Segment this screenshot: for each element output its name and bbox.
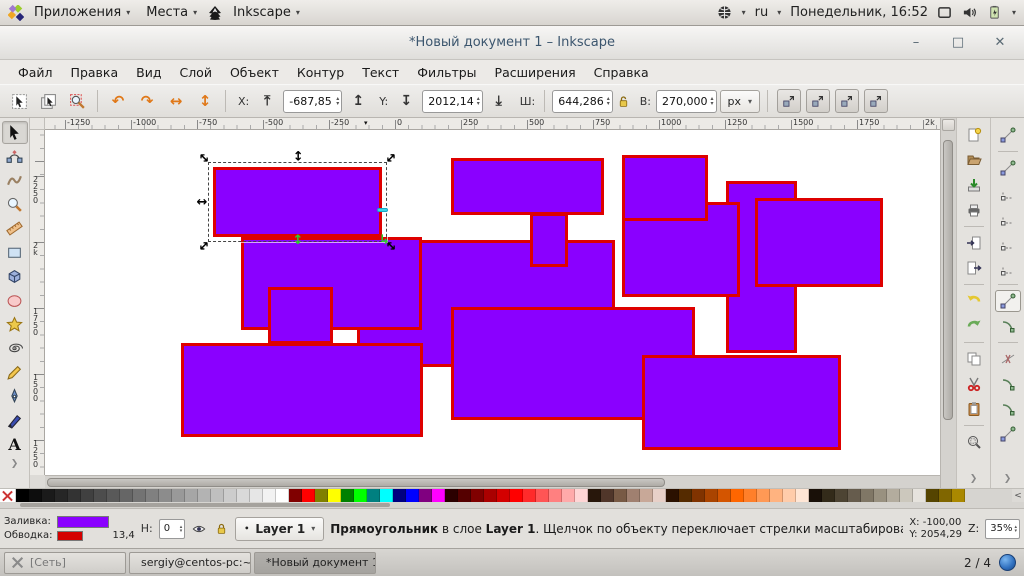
distro-logo-icon xyxy=(8,5,24,21)
width-label: Ш: xyxy=(520,95,535,108)
color-swatch-72[interactable] xyxy=(939,489,952,502)
color-swatch-10[interactable] xyxy=(133,489,146,502)
workspace-pager[interactable]: 2 / 4 xyxy=(964,556,991,570)
vertical-scrollbar[interactable] xyxy=(940,118,956,488)
y-field[interactable]: 2012,14 xyxy=(422,90,483,113)
taskbar-item-1[interactable]: [Сеть] xyxy=(4,552,126,574)
color-swatch-17[interactable] xyxy=(224,489,237,502)
color-swatch-56[interactable] xyxy=(731,489,744,502)
spinner-arrows-icon[interactable] xyxy=(607,96,610,106)
selection-toolbar: X: -687,85 Y: 2012,14 Ш: 644,286 В: 270,… xyxy=(0,84,1024,118)
color-swatch-12[interactable] xyxy=(159,489,172,502)
color-swatch-1[interactable] xyxy=(16,489,29,502)
color-swatch-44[interactable] xyxy=(575,489,588,502)
menu-4[interactable]: Слой xyxy=(171,62,220,83)
snap-bbox-corner-button[interactable] xyxy=(995,207,1021,229)
menu-3[interactable]: Вид xyxy=(128,62,169,83)
menu-2[interactable]: Правка xyxy=(63,62,127,83)
tool-text[interactable]: A xyxy=(2,433,28,456)
snap-bbox-edge-button[interactable] xyxy=(995,182,1021,204)
color-swatch-52[interactable] xyxy=(679,489,692,502)
snap-cusp-node-button[interactable] xyxy=(995,373,1021,395)
color-swatch-11[interactable] xyxy=(146,489,159,502)
overflow-chevron[interactable]: ❯ xyxy=(970,474,978,484)
color-swatch-20[interactable] xyxy=(263,489,276,502)
zoom-field[interactable]: 35% xyxy=(985,519,1020,539)
display-icon[interactable] xyxy=(937,5,953,21)
keyboard-layout-indicator[interactable]: ru xyxy=(755,5,769,20)
ruler-tick-label: -1000 xyxy=(133,118,156,127)
zoom-drawing-button[interactable] xyxy=(961,431,987,453)
raise-to-top-button[interactable]: ⤒ xyxy=(254,88,280,114)
tool-select[interactable] xyxy=(2,121,28,144)
tool-star[interactable] xyxy=(2,313,28,336)
x-label: X: xyxy=(238,95,249,108)
ruler-tick-label: -1250 xyxy=(67,118,90,127)
ruler-toggle-button[interactable] xyxy=(942,119,955,131)
color-swatch-47[interactable] xyxy=(614,489,627,502)
vertical-scrollbar-thumb[interactable] xyxy=(943,140,953,420)
status-message: Прямоугольник в слое Layer 1. Щелчок по … xyxy=(330,522,903,536)
tool-box3d[interactable] xyxy=(2,265,28,288)
color-swatch-36[interactable] xyxy=(471,489,484,502)
layer-visibility-icon[interactable] xyxy=(191,521,207,537)
lower-to-bottom-button[interactable]: ⤓ xyxy=(486,88,512,114)
redo-button[interactable] xyxy=(961,315,987,337)
ruler-tick-label: 1250 xyxy=(727,118,747,127)
ruler-tick-label: -750 xyxy=(199,118,217,127)
separator xyxy=(767,90,768,112)
x-field[interactable]: -687,85 xyxy=(283,90,342,113)
ruler-tick-label: 1 5 0 0 xyxy=(30,374,41,402)
color-swatch-18[interactable] xyxy=(237,489,250,502)
units-dropdown[interactable]: px▾ xyxy=(720,90,761,113)
fill-swatch[interactable] xyxy=(57,516,109,528)
close-button[interactable]: ✕ xyxy=(992,35,1008,50)
raise-button[interactable]: ↥ xyxy=(345,88,371,114)
color-swatch-38[interactable] xyxy=(497,489,510,502)
stroke-label: Обводка: xyxy=(4,530,53,541)
scroll-corner xyxy=(30,475,45,488)
color-swatch-37[interactable] xyxy=(484,489,497,502)
scale-handle[interactable]: ↔ xyxy=(290,148,306,164)
color-swatch-59[interactable] xyxy=(770,489,783,502)
snap-target-indicator xyxy=(377,208,388,212)
color-swatch-33[interactable] xyxy=(432,489,445,502)
horizontal-scrollbar-thumb[interactable] xyxy=(47,478,665,487)
ruler-tick-label: 250 xyxy=(463,118,478,127)
width-field[interactable]: 644,286 xyxy=(552,90,613,113)
chevron-down-icon: ▾ xyxy=(742,8,746,17)
rotate-ccw-button[interactable]: ↶ xyxy=(105,88,131,114)
save-button[interactable] xyxy=(961,174,987,196)
menu-1[interactable]: Файл xyxy=(10,62,61,83)
snap-path-button[interactable] xyxy=(995,315,1021,337)
select-all-layers-button[interactable] xyxy=(35,88,61,114)
spinner-arrows-icon[interactable] xyxy=(711,96,714,106)
snap-midpoint-button[interactable] xyxy=(995,423,1021,445)
rectangle-object-8[interactable] xyxy=(755,198,883,287)
chevron-down-icon: ▾ xyxy=(193,8,197,17)
move-gradients-toggle[interactable] xyxy=(806,89,830,113)
desktop: Приложения▾ Места▾ Inkscape▾ ▾ ru ▾ Поне… xyxy=(0,0,1024,576)
palette-scrollbar-thumb[interactable] xyxy=(20,503,390,507)
flip-horizontal-button[interactable]: ↔ xyxy=(163,88,189,114)
swatch-none[interactable] xyxy=(0,489,16,502)
snap-bbox-button[interactable] xyxy=(995,157,1021,179)
snap-intersection-button[interactable] xyxy=(995,348,1021,370)
separator xyxy=(998,284,1018,285)
tool-node[interactable] xyxy=(2,145,28,168)
color-swatch-65[interactable] xyxy=(848,489,861,502)
color-swatch-19[interactable] xyxy=(250,489,263,502)
color-swatch-31[interactable] xyxy=(406,489,419,502)
overflow-chevron[interactable]: ❯ xyxy=(1004,474,1012,484)
tool-rectangle[interactable] xyxy=(2,241,28,264)
height-field[interactable]: 270,000 xyxy=(656,90,717,113)
color-swatch-71[interactable] xyxy=(926,489,939,502)
statusbar: Заливка: Обводка: 13,4 H: 0 • Layer 1 ▾ … xyxy=(0,508,1024,548)
snap-bbox-center-button[interactable] xyxy=(995,257,1021,279)
menu-7[interactable]: Текст xyxy=(354,62,407,83)
new-document-button[interactable] xyxy=(961,124,987,146)
layer-lock-icon[interactable] xyxy=(213,521,229,537)
app-window-menu[interactable]: Inkscape▾ xyxy=(227,3,306,22)
color-swatch-28[interactable] xyxy=(367,489,380,502)
color-swatch-14[interactable] xyxy=(185,489,198,502)
snap-indicator-icon: ↕ xyxy=(293,233,304,248)
tool-tweak[interactable] xyxy=(2,169,28,192)
ruler-tick-label: -250 xyxy=(331,118,349,127)
ruler-cursor-marker: ▾ xyxy=(364,119,368,127)
battery-icon[interactable] xyxy=(987,5,1003,21)
color-swatch-53[interactable] xyxy=(692,489,705,502)
separator xyxy=(97,90,98,112)
color-swatch-41[interactable] xyxy=(536,489,549,502)
menubar: ФайлПравкаВидСлойОбъектКонтурТекстФильтр… xyxy=(0,60,1024,84)
zoom-selection-button[interactable] xyxy=(64,88,90,114)
color-swatch-45[interactable] xyxy=(588,489,601,502)
color-swatch-8[interactable] xyxy=(107,489,120,502)
color-swatch-69[interactable] xyxy=(900,489,913,502)
color-swatch-60[interactable] xyxy=(783,489,796,502)
separator xyxy=(998,342,1018,343)
rotate-cw-button[interactable]: ↷ xyxy=(134,88,160,114)
chevron-down-icon: ▾ xyxy=(748,97,752,106)
move-patterns-toggle[interactable] xyxy=(777,89,801,113)
svg-text:A: A xyxy=(7,436,21,453)
color-swatch-29[interactable] xyxy=(380,489,393,502)
color-swatch-63[interactable] xyxy=(822,489,835,502)
ruler-corner xyxy=(30,118,45,130)
chevron-down-icon: ▾ xyxy=(777,8,781,17)
rectangle-object-9[interactable] xyxy=(181,343,423,437)
opacity-label: H: xyxy=(141,522,153,535)
menu-6[interactable]: Контур xyxy=(289,62,352,83)
tool-ellipse[interactable] xyxy=(2,289,28,312)
color-swatch-67[interactable] xyxy=(874,489,887,502)
maximize-button[interactable]: □ xyxy=(950,35,966,50)
color-swatch-54[interactable] xyxy=(705,489,718,502)
color-swatch-16[interactable] xyxy=(211,489,224,502)
vertical-ruler[interactable]: 2 2 5 02 k1 7 5 01 5 0 01 2 5 0 xyxy=(30,130,45,475)
taskbar-item-2[interactable]: sergiy@centos-pc:~ xyxy=(129,552,251,574)
layer-dropdown[interactable]: • Layer 1 ▾ xyxy=(235,517,324,541)
selection-marquee xyxy=(208,162,387,242)
color-swatch-6[interactable] xyxy=(81,489,94,502)
open-button[interactable] xyxy=(961,149,987,171)
inkscape-logo-icon xyxy=(207,5,223,21)
lock-ratio-icon[interactable] xyxy=(616,93,632,109)
color-swatch-24[interactable] xyxy=(315,489,328,502)
volume-icon[interactable] xyxy=(962,5,978,21)
print-button[interactable] xyxy=(961,199,987,221)
zoom-label: Z: xyxy=(968,522,979,535)
color-swatch-58[interactable] xyxy=(757,489,770,502)
separator xyxy=(998,151,1018,152)
tool-calligraphy[interactable] xyxy=(2,409,28,432)
color-swatch-35[interactable] xyxy=(458,489,471,502)
rectangle-object-7[interactable] xyxy=(622,155,708,221)
horizontal-ruler[interactable]: -1250-1000-750-500-250025050075010001250… xyxy=(45,118,940,130)
ruler-tick-label: 1750 xyxy=(859,118,879,127)
separator xyxy=(964,425,984,426)
toolbox: A❯ xyxy=(0,118,30,488)
color-swatch-42[interactable] xyxy=(549,489,562,502)
menu-5[interactable]: Объект xyxy=(222,62,287,83)
ruler-tick-label: 0 xyxy=(397,118,402,127)
spinner-arrows-icon[interactable] xyxy=(477,96,480,106)
separator xyxy=(964,226,984,227)
color-swatch-7[interactable] xyxy=(94,489,107,502)
ruler-tick-label: 2k xyxy=(925,118,935,127)
color-swatch-25[interactable] xyxy=(328,489,341,502)
color-swatch-48[interactable] xyxy=(627,489,640,502)
stroke-width-value[interactable]: 13,4 xyxy=(113,530,135,541)
select-all-button[interactable] xyxy=(6,88,32,114)
tool-measure[interactable] xyxy=(2,217,28,240)
workspace-indicator-icon[interactable] xyxy=(999,554,1016,571)
menu-10[interactable]: Справка xyxy=(586,62,657,83)
rectangle-object-6[interactable] xyxy=(530,213,568,267)
separator xyxy=(964,284,984,285)
ruler-tick-label: 2 2 5 0 xyxy=(30,176,41,204)
color-swatch-34[interactable] xyxy=(445,489,458,502)
color-swatch-64[interactable] xyxy=(835,489,848,502)
snap-toggle-button[interactable] xyxy=(995,124,1021,146)
lower-button[interactable]: ↧ xyxy=(393,88,419,114)
globe-icon[interactable] xyxy=(717,5,733,21)
spinner-arrows-icon[interactable] xyxy=(1014,525,1017,533)
separator xyxy=(964,342,984,343)
tool-spiral[interactable] xyxy=(2,337,28,360)
chevron-down-icon: ▾ xyxy=(311,524,315,533)
horizontal-scrollbar[interactable] xyxy=(45,475,940,488)
desktop-panel: Приложения▾ Места▾ Inkscape▾ ▾ ru ▾ Поне… xyxy=(0,0,1024,26)
move-clips-toggle[interactable] xyxy=(835,89,859,113)
color-swatch-61[interactable] xyxy=(796,489,809,502)
window-titlebar[interactable]: *Новый документ 1 – Inkscape –□✕ xyxy=(0,26,1024,60)
ruler-tick-label: 1 2 5 0 xyxy=(30,440,41,468)
color-swatch-46[interactable] xyxy=(601,489,614,502)
applications-menu[interactable]: Приложения▾ xyxy=(28,3,136,22)
color-swatch-5[interactable] xyxy=(68,489,81,502)
taskbar: [Сеть]sergiy@centos-pc:~*Новый документ … xyxy=(0,548,1024,576)
color-swatch-22[interactable] xyxy=(289,489,302,502)
ruler-tick-label: -500 xyxy=(265,118,283,127)
chevron-down-icon: ▾ xyxy=(296,8,300,17)
opacity-field[interactable]: 0 xyxy=(159,519,186,539)
color-swatch-15[interactable] xyxy=(198,489,211,502)
color-swatch-62[interactable] xyxy=(809,489,822,502)
layer-dot-icon: • xyxy=(244,524,249,533)
snap-bar: ❯ xyxy=(990,118,1024,488)
ruler-tick-label: 1 7 5 0 xyxy=(30,308,41,336)
import-button[interactable] xyxy=(961,232,987,254)
toolbox-overflow-chevron[interactable]: ❯ xyxy=(11,459,19,469)
separator xyxy=(544,90,545,112)
undo-button[interactable] xyxy=(961,290,987,312)
snap-nodes-button[interactable] xyxy=(995,290,1021,312)
color-swatch-66[interactable] xyxy=(861,489,874,502)
cursor-coordinates: X: -100,00 Y: 2054,29 xyxy=(909,517,962,541)
ruler-tick-label: 1500 xyxy=(793,118,813,127)
color-swatch-13[interactable] xyxy=(172,489,185,502)
color-swatch-32[interactable] xyxy=(419,489,432,502)
color-swatch-49[interactable] xyxy=(640,489,653,502)
tool-pen[interactable] xyxy=(2,385,28,408)
flip-vertical-button[interactable]: ↕ xyxy=(192,88,218,114)
separator xyxy=(225,90,226,112)
color-palette: < xyxy=(0,488,1024,502)
commands-bar: ❯ xyxy=(956,118,990,488)
stroke-swatch[interactable] xyxy=(57,531,83,541)
tool-pencil[interactable] xyxy=(2,361,28,384)
menu-8[interactable]: Фильтры xyxy=(409,62,484,83)
palette-scrollbar[interactable] xyxy=(0,502,1024,508)
minimize-button[interactable]: – xyxy=(908,35,924,50)
height-label: В: xyxy=(640,95,651,108)
color-swatch-26[interactable] xyxy=(341,489,354,502)
taskbar-item-3[interactable]: *Новый документ 1 – Inkscape xyxy=(254,552,376,574)
snap-smooth-node-button[interactable] xyxy=(995,398,1021,420)
rectangle-object-5[interactable] xyxy=(451,158,604,215)
transform-stroke-toggle[interactable] xyxy=(864,89,888,113)
scale-handle[interactable]: ↔ xyxy=(194,194,210,210)
color-swatch-2[interactable] xyxy=(29,489,42,502)
chevron-down-icon: ▾ xyxy=(126,8,130,17)
color-swatch-23[interactable] xyxy=(302,489,315,502)
rectangle-object-10[interactable] xyxy=(268,287,333,344)
color-swatch-27[interactable] xyxy=(354,489,367,502)
color-swatch-57[interactable] xyxy=(744,489,757,502)
tool-zoom[interactable] xyxy=(2,193,28,216)
canvas[interactable]: ↔↔↔↔↔↔↕↳ xyxy=(45,130,940,475)
spinner-arrows-icon[interactable] xyxy=(180,525,183,533)
places-menu[interactable]: Места▾ xyxy=(140,3,203,22)
color-swatch-50[interactable] xyxy=(653,489,666,502)
fill-label: Заливка: xyxy=(4,516,53,527)
color-swatch-70[interactable] xyxy=(913,489,926,502)
color-swatch-3[interactable] xyxy=(42,489,55,502)
color-swatch-43[interactable] xyxy=(562,489,575,502)
color-swatch-40[interactable] xyxy=(523,489,536,502)
color-swatch-39[interactable] xyxy=(510,489,523,502)
ruler-tick-label: 2 k xyxy=(30,242,41,256)
palette-scroll-left-button[interactable]: < xyxy=(1012,489,1024,502)
snap-indicator-icon: ↳ xyxy=(379,233,390,248)
snap-bbox-edge-mid-button[interactable] xyxy=(995,232,1021,254)
cut-button[interactable] xyxy=(961,373,987,395)
color-swatch-73[interactable] xyxy=(952,489,965,502)
export-button[interactable] xyxy=(961,257,987,279)
y-label: Y: xyxy=(379,95,388,108)
color-swatch-51[interactable] xyxy=(666,489,679,502)
color-swatch-9[interactable] xyxy=(120,489,133,502)
window-title: *Новый документ 1 – Inkscape xyxy=(0,35,1024,50)
clock[interactable]: Понедельник, 16:52 xyxy=(790,5,928,20)
ruler-tick-label: 750 xyxy=(595,118,610,127)
color-swatch-55[interactable] xyxy=(718,489,731,502)
paste-button[interactable] xyxy=(961,398,987,420)
chevron-down-icon: ▾ xyxy=(1012,8,1016,17)
ruler-tick-label: 500 xyxy=(529,118,544,127)
rectangle-object-12[interactable] xyxy=(642,355,841,450)
menu-9[interactable]: Расширения xyxy=(487,62,584,83)
color-swatch-4[interactable] xyxy=(55,489,68,502)
copy-button[interactable] xyxy=(961,348,987,370)
color-swatch-68[interactable] xyxy=(887,489,900,502)
color-swatch-30[interactable] xyxy=(393,489,406,502)
spinner-arrows-icon[interactable] xyxy=(336,96,339,106)
color-swatch-21[interactable] xyxy=(276,489,289,502)
ruler-tick-label: 1000 xyxy=(661,118,681,127)
